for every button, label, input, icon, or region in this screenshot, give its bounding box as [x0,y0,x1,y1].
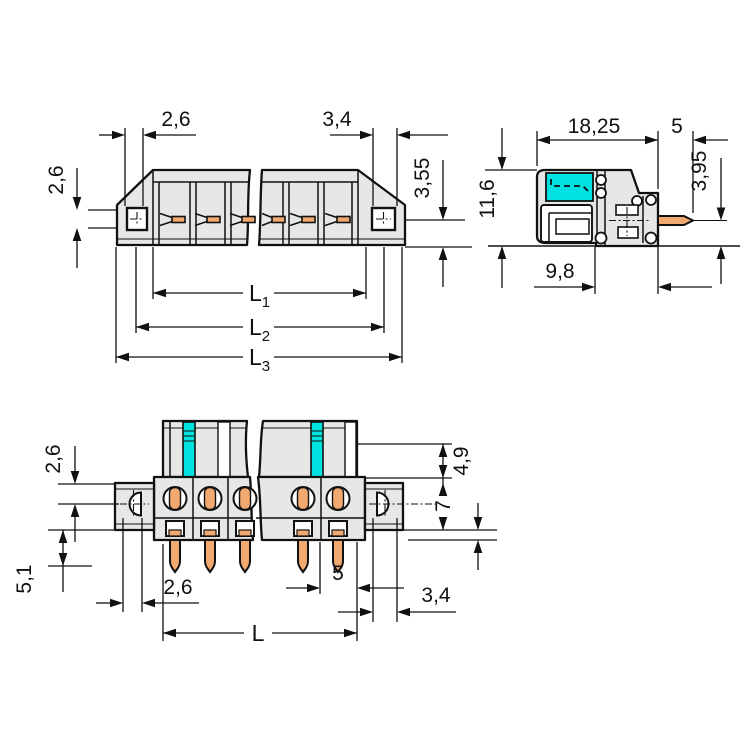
dim-label: 18,25 [568,115,621,138]
dim-label: 5,1 [13,564,36,593]
dim-side-height: 11,6 [476,128,506,288]
dim-label: L1 [249,280,270,311]
latch-hole-left [127,208,147,230]
dim-label: L3 [249,344,270,375]
dim-label: 2,6 [161,108,190,131]
dim-flange-depth: 9,8 [534,247,712,294]
dim-front-left-top: 2,6 [42,444,119,542]
extension-line [88,210,117,228]
dim-label: 2,6 [42,444,65,473]
dim-pin-drop: 3,95 [688,151,725,284]
dim-right-height: 3,55 [411,158,447,287]
front-view: 2,6 5,1 4,9 7 [13,421,497,646]
dim-label: 4,9 [450,446,473,475]
solder-pin-side [658,216,693,225]
extension-line [405,220,472,247]
dim-label: 9,8 [545,260,574,283]
dim-label: L [252,620,265,646]
dim-label: 3,95 [688,151,711,192]
technical-drawing-page: 2,6 3,4 2,6 3,55 [0,0,750,750]
dim-label: 5 [671,115,683,138]
dim-label: 3,4 [322,108,352,131]
dim-L3: L3 [116,247,402,375]
upper-housing-left [163,421,248,477]
dim-label: 5 [332,562,344,585]
clamp-lever-window [546,173,593,201]
solder-pins [170,540,343,572]
dim-front-right-top: 4,9 [357,444,473,478]
dimension-drawing: 2,6 3,4 2,6 3,55 [0,0,750,750]
dim-label: L2 [249,314,270,345]
dim-label: 2,6 [45,165,68,194]
dim-label: 3,55 [411,158,434,199]
mounting-flange-left [115,483,154,530]
pin-seat-detail [618,227,638,238]
top-view: 2,6 3,4 2,6 3,55 [45,108,472,375]
dim-label: 3,4 [421,584,451,607]
side-view: 18,25 5 3,95 11,6 [476,115,740,294]
upper-housing-right [259,421,357,477]
latch-hole-right [372,208,395,230]
dim-L1: L1 [153,247,366,311]
dim-base-ticks [408,503,497,570]
dim-left-height: 2,6 [45,165,81,268]
dim-label: 2,6 [163,576,192,599]
mounting-flange-right [365,483,437,530]
dim-label: 7 [432,500,455,512]
dim-label: 11,6 [476,179,499,218]
dim-front-left-bottom: 5,1 [13,530,115,594]
